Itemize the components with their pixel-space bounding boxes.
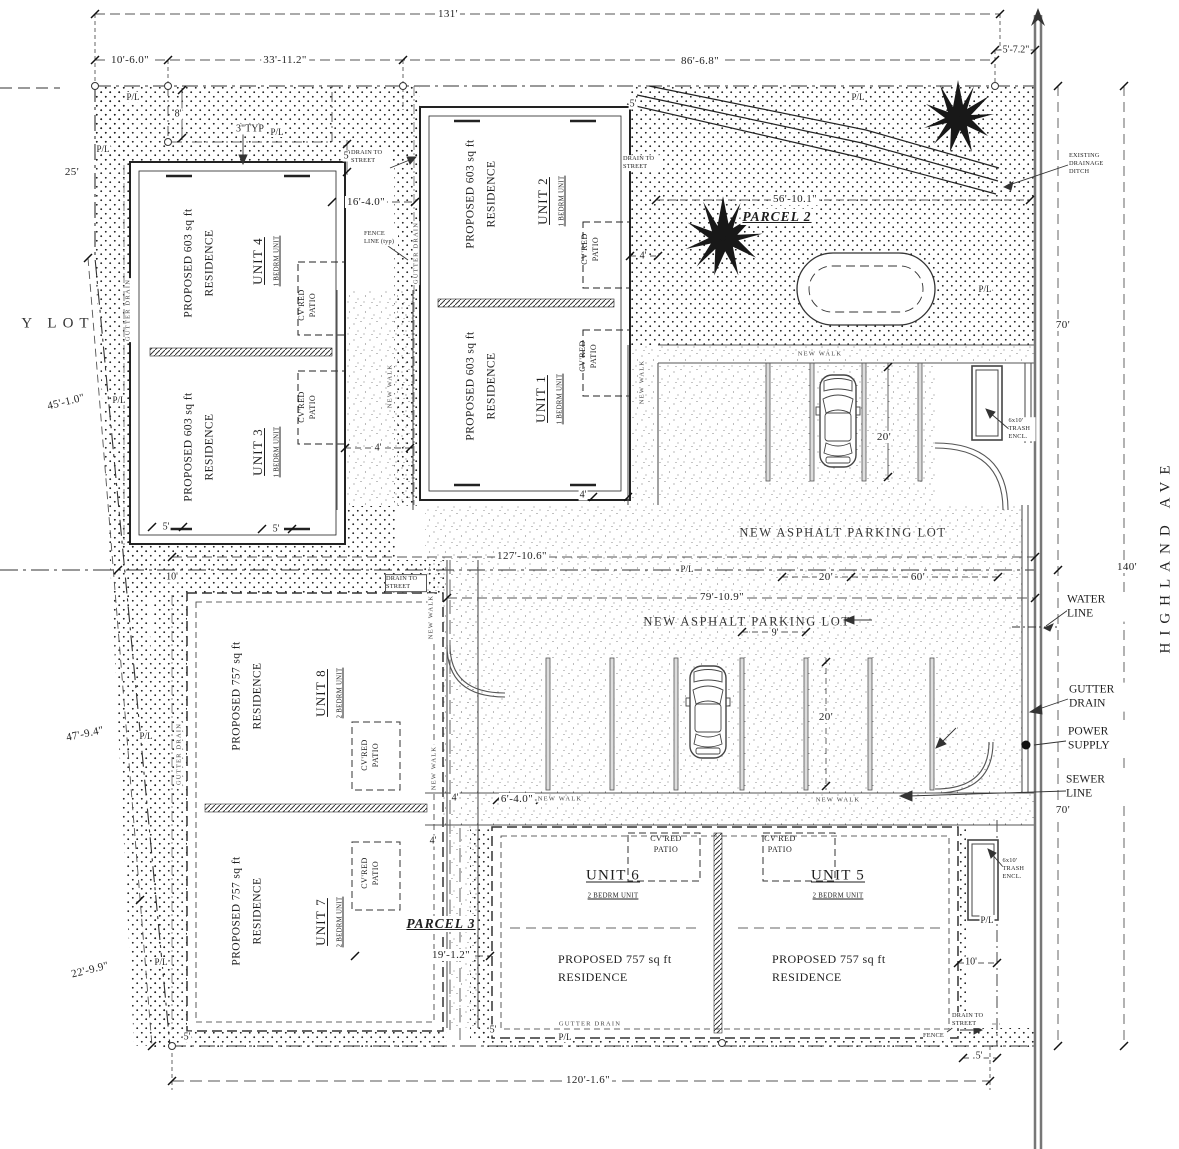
residence-label-unit8: PROPOSED 757 sq ft RESIDENCE <box>226 632 267 760</box>
unit-8-type: 2 BEDRM UNIT <box>337 668 344 719</box>
dim-19-1: 19'-1.2" <box>430 949 472 961</box>
trash-enclosure-note: 6x10' TRASH ENCL. <box>1009 417 1036 441</box>
power-supply-label: POWER SUPPLY <box>1068 725 1128 754</box>
trash-enclosure-note: 6x10' TRASH ENCL. <box>1003 857 1030 881</box>
parcel-3-label: PARCEL 3 <box>404 916 477 932</box>
dim-70-lower: 70' <box>1054 804 1072 816</box>
dim-9: 9' <box>771 628 780 639</box>
residence-label-unit3: PROPOSED 603 sq ft RESIDENCE <box>178 383 219 511</box>
unit-8-label: UNIT 8 <box>313 669 329 717</box>
dim-4-unitA: 4' <box>374 443 383 454</box>
unit-3-label: UNIT 3 <box>250 428 266 476</box>
covered-patio-label: CV'RED PATIO <box>360 854 382 892</box>
residence-label-unit7: PROPOSED 757 sq ft RESIDENCE <box>226 847 267 975</box>
property-line-marker: P/L <box>138 731 153 741</box>
drain-to-street-note: DRAIN TO STREET <box>623 155 663 171</box>
property-line-marker: P/L <box>979 915 994 925</box>
gutter-drain-label: GUTTER DRAIN <box>125 278 132 342</box>
dim-5-unitB: 5' <box>629 99 638 110</box>
unit-4-label: UNIT 4 <box>250 237 266 285</box>
dim-20-stall2: 20' <box>817 711 835 723</box>
new-walk-label: NEW WALK <box>797 351 844 358</box>
building-units-6-5 <box>492 827 958 1038</box>
property-line-marker: P/L <box>977 284 992 294</box>
site-plan: 131' 10'-6.0" 33'-11.2" 86'-6.8" 5'-7.2"… <box>0 0 1179 1149</box>
covered-patio-label: CV'RED PATIO <box>580 230 602 268</box>
dim-5: 5' <box>975 1051 984 1062</box>
covered-patio-label: CV'RED PATIO <box>360 736 382 774</box>
parking-lot-label: NEW ASPHALT PARKING LOT <box>643 615 850 630</box>
dim-127-10: 127'-10.6" <box>495 550 549 562</box>
landscape-oval <box>797 253 935 325</box>
dim-3typ: 3"TYP <box>235 124 265 135</box>
fence-line-note: FENCE LINE (typ) <box>364 230 398 246</box>
parcel-2-label: PARCEL 2 <box>740 209 813 225</box>
unit-5-type: 2 BEDRM UNIT <box>813 893 864 900</box>
residence-label-unit1: PROPOSED 603 sq ft RESIDENCE <box>460 322 501 450</box>
dim-10-right: 10' <box>964 957 978 968</box>
dim-86-6: 86'-6.8" <box>679 55 721 67</box>
dim-4: 4' <box>451 793 460 804</box>
unit-1-label: UNIT 1 <box>533 375 549 423</box>
residence-label-unit6: PROPOSED 757 sq ft RESIDENCE <box>558 950 698 986</box>
covered-patio-label: CV'RED PATIO <box>647 834 685 856</box>
drain-to-street-note: DRAIN TO STREET <box>952 1012 992 1028</box>
residence-label-unit5: PROPOSED 757 sq ft RESIDENCE <box>772 950 912 986</box>
dim-25: 25' <box>63 166 81 178</box>
dim-10-left: 10' <box>165 572 179 583</box>
drain-to-street-note: DRAIN TO STREET <box>385 574 427 592</box>
new-walk-label: NEW WALK <box>387 363 394 410</box>
unit-7-label: UNIT 7 <box>313 898 329 946</box>
dim-70-upper: 70' <box>1054 319 1072 331</box>
dim-8: 8' <box>174 109 183 120</box>
dim-20: 20' <box>817 571 835 583</box>
gutter-drain-label: GUTTER DRAIN <box>558 1021 622 1028</box>
residence-label-unit4: PROPOSED 603 sq ft RESIDENCE <box>178 199 219 327</box>
property-line-marker: P/L <box>111 395 126 405</box>
parking-lot-label: NEW ASPHALT PARKING LOT <box>739 526 946 541</box>
unit-2-type: 1 BEDRM UNIT <box>559 176 566 227</box>
street-arrow-icon <box>1031 8 1045 26</box>
fence-note: FENCE <box>923 1032 947 1040</box>
unit-3-type: 1 BEDRM UNIT <box>274 427 281 478</box>
dim-140: 140' <box>1115 561 1139 573</box>
gutter-drain-callout: GUTTER DRAIN <box>1069 683 1129 712</box>
unit-7-type: 2 BEDRM UNIT <box>337 897 344 948</box>
unit-4-type: 1 BEDRM UNIT <box>274 236 281 287</box>
unit-5-label: UNIT 5 <box>811 868 865 885</box>
dim-120-1: 120'-1.6" <box>564 1074 612 1086</box>
property-line-marker: P/L <box>679 564 694 574</box>
dim-33-11: 33'-11.2" <box>261 54 309 66</box>
new-walk-label: NEW WALK <box>431 745 438 792</box>
new-walk-label: NEW WALK <box>815 797 862 804</box>
drainage-ditch-note: EXISTING DRAINAGE DITCH <box>1069 152 1115 176</box>
property-line-marker: P/L <box>125 92 140 102</box>
adjacent-lot-label: Y LOT <box>21 316 94 333</box>
property-line-marker: P/L <box>269 127 284 137</box>
dim-5: 5' <box>489 1025 498 1036</box>
property-line-marker: P/L <box>95 144 110 154</box>
gutter-drain-label: GUTTER DRAIN <box>413 221 420 285</box>
dim-56-10: 56'-10.1" <box>771 193 819 205</box>
property-line-marker: P/L <box>557 1032 572 1042</box>
dim-6-4: 6'-4.0" <box>499 793 535 805</box>
gutter-drain-label: GUTTER DRAIN <box>176 722 183 786</box>
sewer-line-label: SEWER LINE <box>1066 773 1126 802</box>
property-line-marker: P/L <box>850 92 865 102</box>
dim-4-unitB: 4' <box>639 251 648 262</box>
unit-6-type: 2 BEDRM UNIT <box>588 893 639 900</box>
covered-patio-label: CV'RED PATIO <box>761 834 799 856</box>
dim-total-top: 131' <box>436 8 460 20</box>
dim-5-7: 5'-7.2" <box>1002 45 1031 56</box>
street-name: HIGHLAND AVE <box>1158 459 1175 654</box>
dim-5: 5' <box>162 522 171 533</box>
dim-16-4: 16'-4.0" <box>345 196 387 208</box>
dim-79-10: 79'-10.9" <box>698 591 746 603</box>
building-units-2-1 <box>420 107 630 500</box>
dim-10-6: 10'-6.0" <box>109 54 151 66</box>
dim-20-stall: 20' <box>875 431 893 443</box>
dim-60: 60' <box>909 571 927 583</box>
unit-6-label: UNIT 6 <box>586 868 640 885</box>
property-line-marker: P/L <box>153 957 168 967</box>
water-line-label: WATER LINE <box>1067 593 1127 622</box>
covered-patio-label: CV'RED PATIO <box>297 286 319 324</box>
drain-to-street-note: DRAIN TO STREET <box>351 149 391 165</box>
new-walk-label: NEW WALK <box>428 594 435 641</box>
building-units-4-3 <box>130 162 345 544</box>
new-walk-label: NEW WALK <box>639 359 646 406</box>
dim-5: 5' <box>183 1032 192 1043</box>
residence-label-unit2: PROPOSED 603 sq ft RESIDENCE <box>460 130 501 258</box>
unit-1-type: 1 BEDRM UNIT <box>557 374 564 425</box>
covered-patio-label: CV'RED PATIO <box>297 388 319 426</box>
unit-2-label: UNIT 2 <box>535 177 551 225</box>
covered-patio-label: CV'RED PATIO <box>578 337 600 375</box>
dim-4: 4' <box>579 490 588 501</box>
dim-4: 4' <box>429 836 438 847</box>
new-walk-label: NEW WALK <box>537 796 584 803</box>
dim-5: 5' <box>272 524 281 535</box>
